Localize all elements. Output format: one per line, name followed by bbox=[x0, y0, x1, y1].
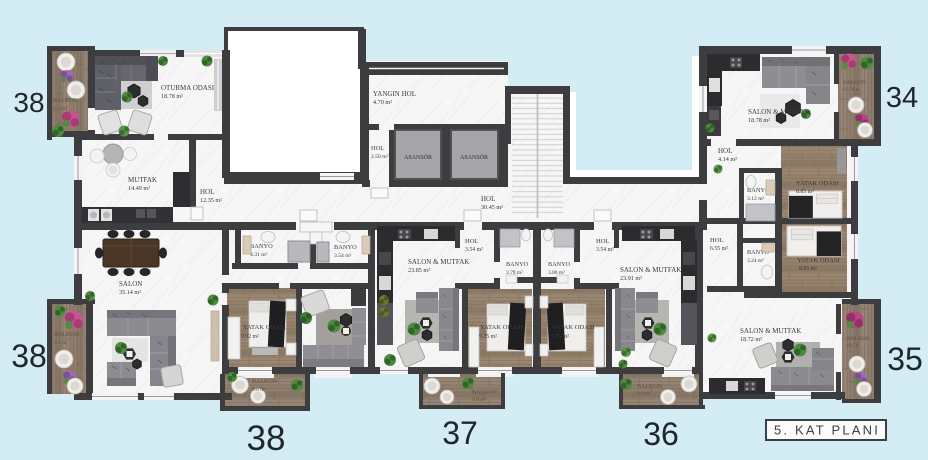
svg-text:HOL: HOL bbox=[465, 238, 479, 245]
svg-text:5. KAT PLANI: 5. KAT PLANI bbox=[774, 423, 880, 438]
svg-text:YATAK ODASI: YATAK ODASI bbox=[797, 257, 840, 264]
svg-text:4.14 m²: 4.14 m² bbox=[718, 156, 737, 163]
svg-text:HOL: HOL bbox=[718, 147, 732, 155]
svg-text:6.2 m²: 6.2 m² bbox=[53, 106, 68, 112]
svg-text:9.25 m²: 9.25 m² bbox=[551, 334, 569, 340]
svg-text:61.70 m: 61.70 m bbox=[843, 88, 860, 93]
svg-text:SALON & MUTFAK: SALON & MUTFAK bbox=[740, 327, 801, 335]
svg-text:HOL: HOL bbox=[200, 188, 214, 196]
svg-text:YANGIN HOL: YANGIN HOL bbox=[373, 90, 416, 98]
svg-text:3.54 m²: 3.54 m² bbox=[596, 247, 614, 253]
svg-text:9.0 m²: 9.0 m² bbox=[637, 391, 652, 397]
svg-text:3.24 m²: 3.24 m² bbox=[747, 258, 764, 264]
svg-text:35: 35 bbox=[887, 341, 923, 377]
svg-text:HOL: HOL bbox=[596, 238, 610, 245]
svg-text:SALON & MUTFAK: SALON & MUTFAK bbox=[748, 108, 809, 116]
svg-text:9.0 m²: 9.0 m² bbox=[472, 397, 487, 403]
svg-text:YATAK ODASI: YATAK ODASI bbox=[796, 180, 839, 187]
svg-text:30.45 m²: 30.45 m² bbox=[481, 204, 503, 211]
svg-text:BANYO: BANYO bbox=[334, 244, 357, 251]
svg-text:SALON & MUTFAK: SALON & MUTFAK bbox=[408, 258, 469, 266]
svg-text:14.49 m²: 14.49 m² bbox=[128, 185, 150, 192]
svg-text:3.12 m²: 3.12 m² bbox=[747, 196, 765, 202]
svg-text:8.85 m²: 8.85 m² bbox=[799, 266, 817, 272]
svg-text:YATAK ODASI: YATAK ODASI bbox=[552, 324, 595, 331]
svg-text:3.54 m²: 3.54 m² bbox=[465, 247, 483, 253]
svg-text:18.72 m²: 18.72 m² bbox=[740, 336, 762, 343]
svg-text:38: 38 bbox=[247, 419, 286, 458]
svg-text:BANYO: BANYO bbox=[250, 243, 273, 250]
svg-text:9.92 m²: 9.92 m² bbox=[241, 334, 259, 340]
svg-text:YATAK ODASI: YATAK ODASI bbox=[243, 324, 286, 331]
svg-text:38: 38 bbox=[11, 338, 47, 374]
svg-text:BANYO: BANYO bbox=[548, 261, 571, 268]
svg-text:BALKON: BALKON bbox=[847, 336, 870, 342]
svg-text:35.14 m²: 35.14 m² bbox=[119, 289, 141, 296]
svg-text:BALKON: BALKON bbox=[637, 384, 663, 390]
svg-text:SALON & MUTFAK: SALON & MUTFAK bbox=[620, 266, 681, 274]
svg-text:HOL: HOL bbox=[371, 145, 384, 152]
svg-text:BALKON: BALKON bbox=[252, 379, 278, 385]
svg-text:60.70: 60.70 bbox=[847, 344, 859, 349]
svg-text:6.55 m²: 6.55 m² bbox=[710, 246, 728, 252]
svg-text:ASANSÖR: ASANSÖR bbox=[460, 154, 488, 161]
svg-text:YATAK ODASI: YATAK ODASI bbox=[480, 324, 523, 331]
svg-text:2.50 m²: 2.50 m² bbox=[371, 154, 389, 160]
svg-text:12.35 m²: 12.35 m² bbox=[200, 197, 222, 204]
svg-text:18.78 m²: 18.78 m² bbox=[161, 93, 183, 100]
svg-text:18.78 m²: 18.78 m² bbox=[748, 117, 770, 124]
svg-text:BANYO: BANYO bbox=[506, 261, 529, 268]
svg-text:38: 38 bbox=[13, 87, 44, 118]
svg-text:BALKON: BALKON bbox=[54, 332, 80, 338]
svg-text:BALKON: BALKON bbox=[53, 98, 79, 104]
svg-text:OTURMA ODASI: OTURMA ODASI bbox=[161, 84, 215, 92]
svg-text:9.25 m²: 9.25 m² bbox=[479, 334, 497, 340]
svg-text:34: 34 bbox=[886, 82, 918, 114]
svg-text:8.85 m²: 8.85 m² bbox=[796, 189, 814, 195]
svg-text:BALKON: BALKON bbox=[843, 80, 866, 86]
svg-text:4.31 m²: 4.31 m² bbox=[250, 252, 268, 258]
svg-text:HOL: HOL bbox=[710, 237, 724, 244]
svg-text:ASANSÖR: ASANSÖR bbox=[404, 154, 432, 161]
svg-text:37: 37 bbox=[442, 415, 478, 451]
svg-text:HOL: HOL bbox=[481, 195, 495, 203]
svg-text:6.1 m: 6.1 m bbox=[54, 340, 67, 346]
svg-text:23.85 m²: 23.85 m² bbox=[408, 267, 430, 274]
svg-text:BALKON: BALKON bbox=[472, 390, 498, 396]
svg-text:MUTFAK: MUTFAK bbox=[128, 176, 157, 184]
svg-text:36: 36 bbox=[643, 416, 679, 452]
svg-text:9.0 m²: 9.0 m² bbox=[252, 387, 267, 393]
svg-text:3.54 m²: 3.54 m² bbox=[334, 253, 352, 259]
svg-text:23.91 m²: 23.91 m² bbox=[620, 275, 642, 282]
svg-text:SALON: SALON bbox=[119, 280, 142, 288]
svg-text:4.70 m²: 4.70 m² bbox=[373, 99, 392, 106]
